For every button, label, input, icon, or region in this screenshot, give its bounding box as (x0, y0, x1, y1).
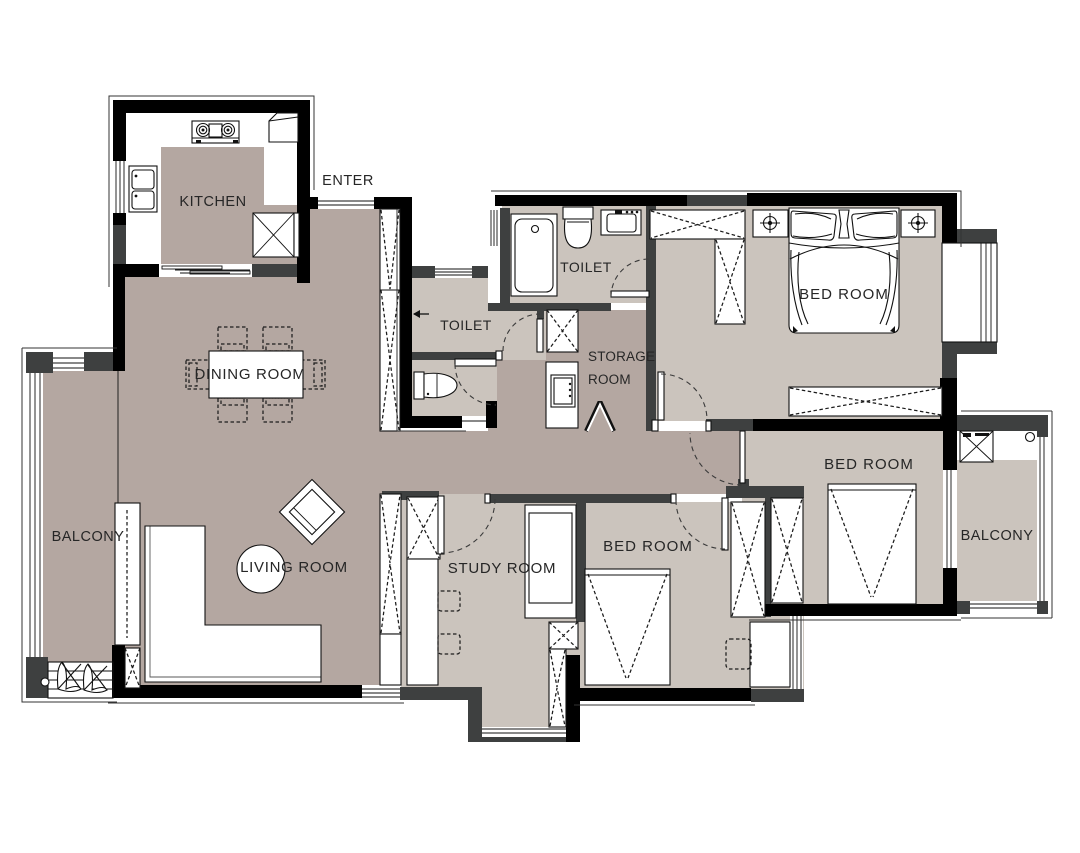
svg-text:KITCHEN: KITCHEN (179, 194, 246, 210)
svg-text:DINING ROOM: DINING ROOM (194, 366, 305, 383)
svg-text:ROOM: ROOM (588, 372, 631, 387)
svg-text:TOILET: TOILET (440, 317, 492, 333)
svg-text:BED ROOM: BED ROOM (799, 286, 889, 303)
svg-text:STUDY ROOM: STUDY ROOM (448, 560, 556, 577)
svg-text:ENTER: ENTER (322, 173, 374, 189)
svg-text:BED ROOM: BED ROOM (603, 538, 693, 555)
svg-text:BED ROOM: BED ROOM (824, 456, 914, 473)
svg-text:TOILET: TOILET (560, 259, 612, 275)
svg-text:LIVING ROOM: LIVING ROOM (240, 559, 348, 576)
svg-text:STORAGE: STORAGE (588, 349, 655, 364)
svg-text:BALCONY: BALCONY (52, 529, 125, 545)
svg-text:BALCONY: BALCONY (961, 528, 1034, 544)
